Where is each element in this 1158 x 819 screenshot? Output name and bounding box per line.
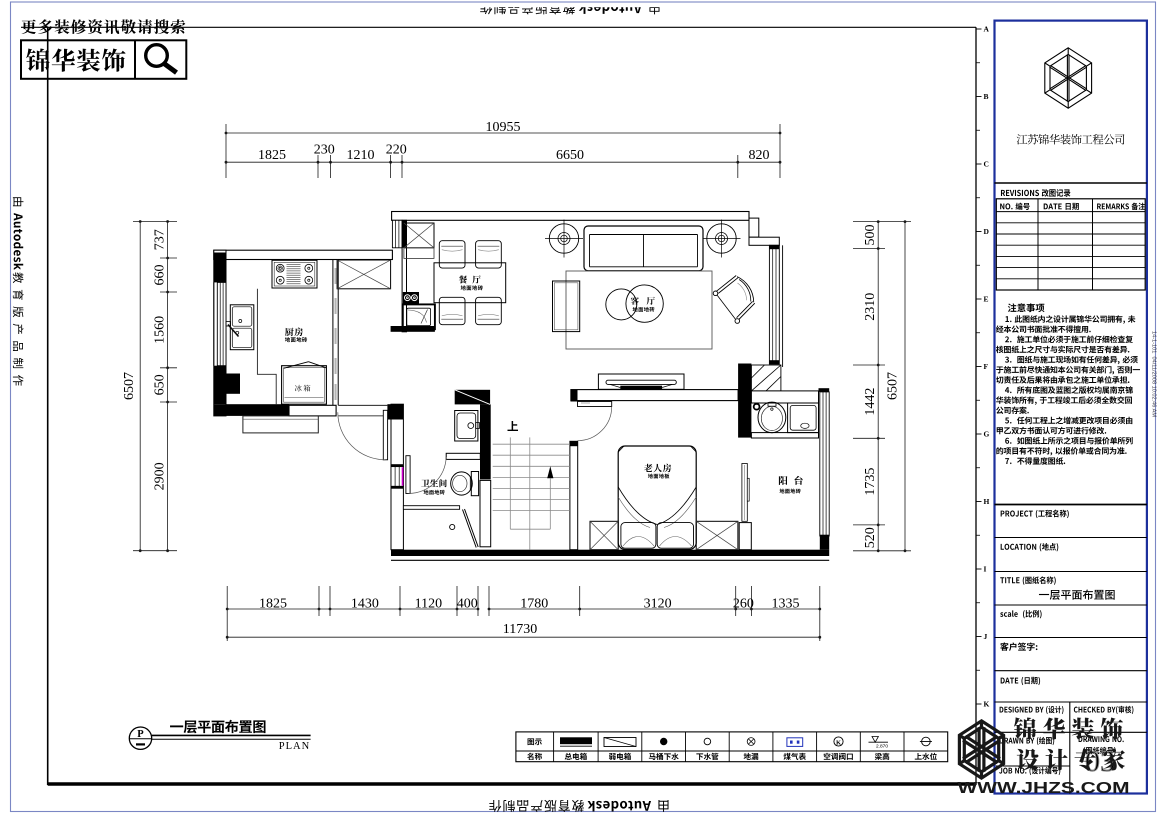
svg-text:6507: 6507 [886,372,901,400]
svg-text:A: A [984,25,990,34]
svg-text:230: 230 [314,142,335,157]
svg-text:2900: 2900 [153,462,168,490]
svg-text:14-1-101 04/11/2008 10:02:46: 14-1-101 04/11/2008 10:02:46 AM [1151,331,1157,417]
svg-text:1560: 1560 [153,316,168,344]
svg-text:K: K [836,739,841,746]
svg-text:10955: 10955 [486,120,521,135]
svg-text:2.870: 2.870 [876,744,888,750]
svg-text:650: 650 [153,374,168,395]
svg-text:B: B [984,92,989,101]
svg-text:1335: 1335 [772,596,800,611]
svg-text:220: 220 [386,142,407,157]
svg-text:1780: 1780 [520,596,548,611]
svg-text:J: J [984,632,988,641]
svg-text:260: 260 [733,596,754,611]
svg-text:6650: 6650 [556,148,584,163]
svg-text:1430: 1430 [351,596,379,611]
svg-text:737: 737 [153,229,168,250]
svg-text:WWW.JHZS.COM: WWW.JHZS.COM [958,780,1130,797]
svg-text:E: E [984,295,989,304]
svg-text:D: D [984,227,990,236]
svg-text:1442: 1442 [863,388,878,416]
svg-text:F: F [984,362,989,371]
svg-text:6507: 6507 [122,372,137,400]
svg-text:3120: 3120 [644,596,672,611]
svg-text:500: 500 [863,225,878,246]
svg-text:C: C [984,160,989,169]
svg-text:11730: 11730 [503,622,537,637]
svg-text:P: P [137,729,144,740]
svg-text:660: 660 [153,265,168,286]
svg-text:I: I [984,565,987,574]
svg-text:PLAN: PLAN [279,741,310,752]
svg-text:H: H [984,497,990,506]
svg-text:1735: 1735 [863,468,878,496]
svg-text:1825: 1825 [258,148,286,163]
svg-text:520: 520 [863,527,878,548]
svg-text:1825: 1825 [259,596,287,611]
svg-text:820: 820 [749,148,770,163]
svg-text:1120: 1120 [415,596,442,611]
svg-text:G: G [984,430,990,439]
svg-text:2310: 2310 [863,293,878,321]
svg-text:1210: 1210 [347,148,375,163]
svg-text:K: K [984,700,990,709]
svg-text:400: 400 [457,596,478,611]
